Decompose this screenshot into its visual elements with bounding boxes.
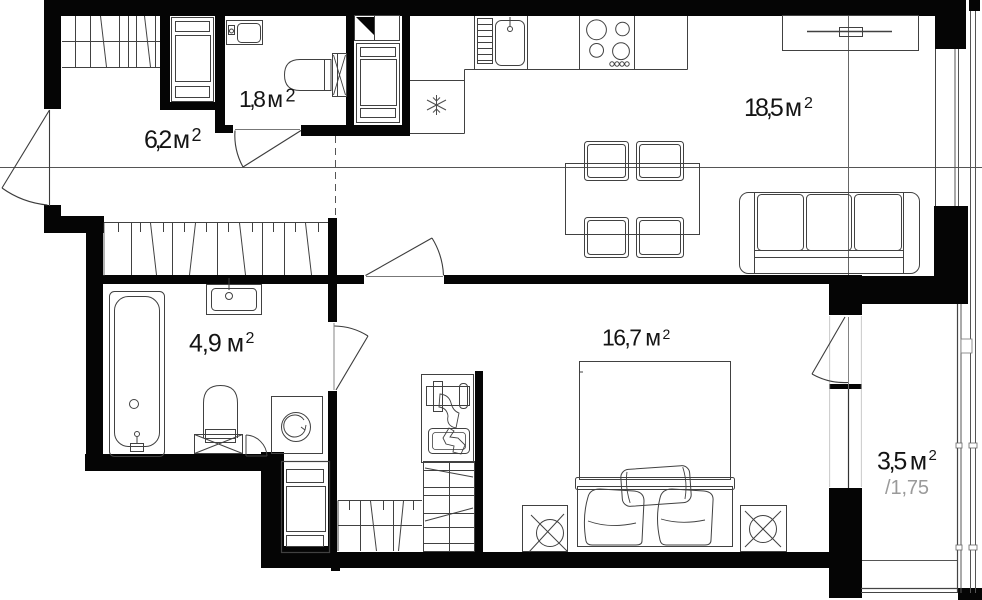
svg-text:3,5 м: 3,5 м	[877, 448, 927, 476]
svg-text:18,5 м: 18,5 м	[744, 94, 802, 122]
svg-text:2: 2	[663, 326, 671, 342]
svg-text:/1,75: /1,75	[885, 477, 929, 499]
svg-text:2: 2	[804, 95, 813, 112]
svg-text:4,9 м: 4,9 м	[189, 330, 244, 358]
svg-text:16,7 м: 16,7 м	[602, 325, 661, 351]
svg-text:2: 2	[929, 447, 937, 464]
svg-text:1,8 м: 1,8 м	[239, 86, 283, 112]
svg-text:2: 2	[246, 330, 255, 347]
svg-text:2: 2	[192, 125, 202, 145]
svg-text:2: 2	[286, 86, 296, 106]
svg-text:6,2 м: 6,2 м	[144, 126, 190, 154]
